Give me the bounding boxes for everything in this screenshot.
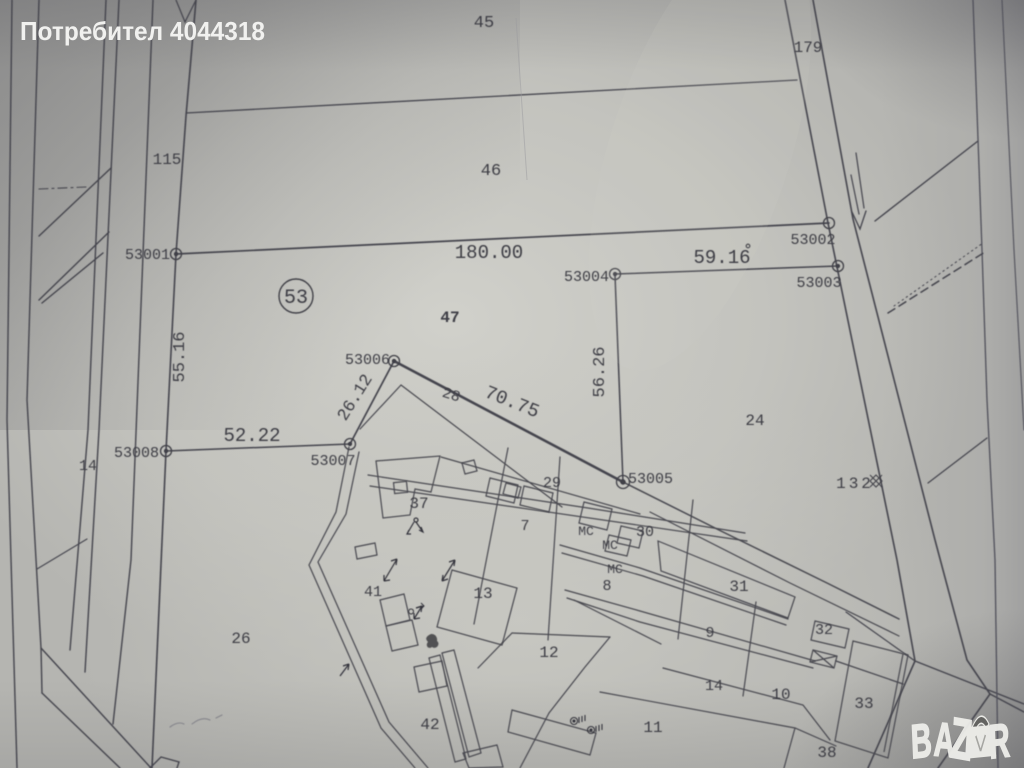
svg-text:8: 8: [602, 578, 611, 595]
svg-text:38: 38: [817, 744, 836, 762]
svg-text:56.26: 56.26: [591, 346, 610, 397]
svg-text:МС: МС: [602, 538, 618, 553]
svg-text:12: 12: [539, 644, 558, 662]
svg-text:53004: 53004: [564, 269, 609, 286]
svg-text:R: R: [988, 714, 1011, 768]
svg-text:132: 132: [836, 475, 874, 493]
svg-text:55.16: 55.16: [171, 331, 190, 382]
svg-text:41: 41: [364, 584, 382, 601]
svg-text:МС: МС: [607, 562, 623, 577]
svg-text:13: 13: [473, 585, 492, 603]
svg-text:47: 47: [440, 309, 459, 327]
svg-text:B: B: [910, 714, 933, 768]
svg-text:32: 32: [815, 622, 833, 639]
svg-text:29: 29: [543, 475, 561, 492]
svg-text:10: 10: [771, 686, 790, 704]
svg-text:26: 26: [231, 630, 250, 648]
svg-text:14: 14: [705, 678, 723, 695]
svg-text:59.16: 59.16: [693, 247, 750, 269]
svg-text:53002: 53002: [790, 232, 835, 249]
svg-text:53006: 53006: [345, 352, 390, 369]
svg-text:30: 30: [636, 524, 654, 541]
svg-text:45: 45: [474, 14, 494, 33]
svg-text:53005: 53005: [628, 471, 673, 488]
svg-text:14: 14: [79, 458, 97, 475]
svg-text:37: 37: [409, 495, 428, 513]
svg-text:52.22: 52.22: [223, 425, 280, 447]
svg-text:46: 46: [481, 162, 501, 181]
svg-text:115: 115: [153, 151, 182, 169]
svg-text:11: 11: [643, 719, 662, 737]
svg-text:МС: МС: [578, 524, 594, 539]
svg-text:53: 53: [284, 287, 308, 310]
svg-text:53001: 53001: [125, 247, 170, 264]
svg-text:Потребител 4044318: Потребител 4044318: [20, 16, 265, 46]
svg-text:53007: 53007: [310, 453, 355, 470]
svg-text:24: 24: [745, 412, 764, 430]
svg-text:31: 31: [729, 578, 748, 596]
svg-text:7: 7: [520, 518, 529, 535]
svg-text:53003: 53003: [796, 275, 841, 292]
svg-text:9: 9: [705, 625, 714, 642]
svg-text:179: 179: [794, 39, 823, 57]
svg-text:42: 42: [420, 716, 439, 734]
svg-text:180.00: 180.00: [455, 242, 523, 264]
svg-text:33: 33: [854, 695, 873, 713]
svg-text:53008: 53008: [114, 445, 159, 462]
